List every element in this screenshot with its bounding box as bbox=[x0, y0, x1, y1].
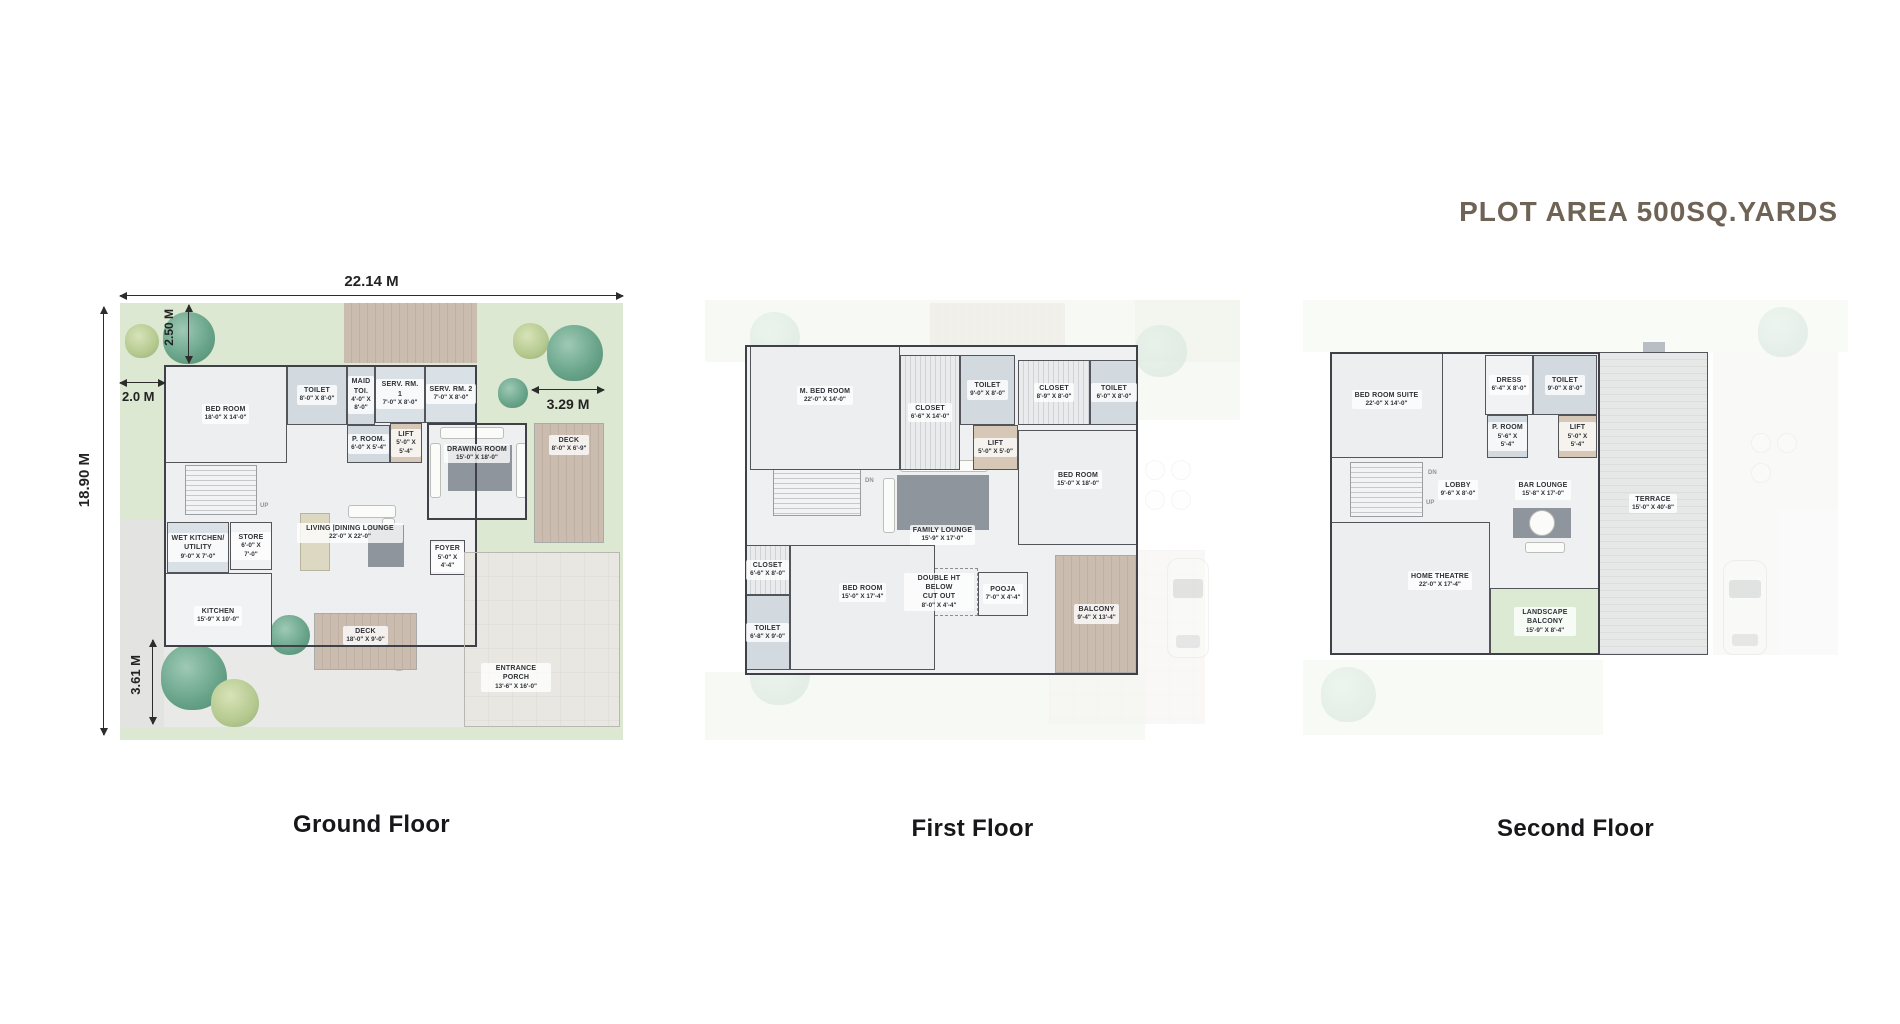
room-home-theatre: HOME THEATRE22'-0" X 17'-4" bbox=[1330, 522, 1490, 655]
room-living-dining-lounge: LIVING |DINING LOUNGE22'-0" X 22'-0" bbox=[280, 473, 420, 593]
room-p-room: P. ROOM5'-6" X 5'-4" bbox=[1487, 415, 1528, 458]
room-kitchen: KITCHEN15'-9" X 10'-0" bbox=[164, 573, 272, 647]
floor-plan-page: PLOT AREA 500SQ.YARDS UP bbox=[0, 0, 1900, 1024]
room-wet-kitchen-utility: WET KITCHEN/ UTILITY9'-0" X 7'-0" bbox=[167, 522, 229, 573]
room-dimensions: 9'-0" X 8'-0" bbox=[1548, 385, 1583, 394]
room-p-room: P. ROOM.6'-0" X 5'-4" bbox=[347, 425, 390, 463]
room-name: POOJA bbox=[986, 585, 1021, 594]
room-serv-rm-1: SERV. RM. 17'-0" X 8'-0" bbox=[375, 365, 425, 423]
room-label: POOJA7'-0" X 4'-4" bbox=[983, 584, 1024, 604]
room-name: DOUBLE HT BELOW bbox=[907, 574, 971, 593]
room-serv-rm-2: SERV. RM. 27'-0" X 8'-0" bbox=[425, 365, 477, 423]
room-toilet: TOILET6'-8" X 9'-0" bbox=[745, 595, 790, 670]
floor-plan-second: DN UP BED ROOM SUITE22'-0" X 14'-0"DRESS… bbox=[1303, 295, 1848, 740]
room-name: P. ROOM. bbox=[351, 435, 386, 444]
room-name: SERV. RM. 2 bbox=[429, 385, 472, 394]
room-label: TOILET6'-0" X 8'-0" bbox=[1091, 383, 1137, 403]
room-dimensions: 22'-0" X 14'-0" bbox=[800, 396, 850, 405]
room-dimensions: 9'-4" X 13'-4" bbox=[1077, 614, 1115, 623]
tree bbox=[547, 325, 603, 381]
room-name: LIFT bbox=[1562, 423, 1593, 432]
room-dimensions: 5'-0" X 5'-0" bbox=[977, 448, 1014, 457]
top-deck bbox=[344, 303, 477, 363]
room-name: P. ROOM bbox=[1491, 423, 1524, 432]
room-label: DRESS6'-4" X 8'-0" bbox=[1489, 375, 1530, 395]
room-dimensions: 6'-6" X 8'-0" bbox=[749, 570, 786, 579]
room-name: TOILET bbox=[300, 386, 335, 395]
room-name: ENTRANCE PORCH bbox=[484, 664, 548, 683]
tree bbox=[270, 615, 310, 655]
room-name: SERV. RM. 1 bbox=[379, 380, 421, 399]
room-name: TERRACE bbox=[1632, 495, 1674, 504]
room-name: CUT OUT bbox=[907, 592, 971, 601]
room-foyer: FOYER5'-0" X 4'-4" bbox=[430, 540, 465, 575]
room-label: DECK8'-0" X 6'-9" bbox=[549, 435, 590, 455]
room-dimensions: 8'-9" X 8'-0" bbox=[1037, 393, 1072, 402]
dim-label-top: 22.14 M bbox=[120, 273, 623, 290]
room-name: TOILET bbox=[1548, 376, 1583, 385]
room-bar-lounge: BAR LOUNGE15'-8" X 17'-0" bbox=[1498, 470, 1588, 530]
room-bed-room: BED ROOM15'-0" X 18'-0" bbox=[1018, 430, 1138, 545]
room-dimensions: 6'-4" X 8'-0" bbox=[1492, 385, 1527, 394]
room-name: CLOSET bbox=[749, 561, 786, 570]
room-lift: LIFT5'-0" X 5'-4" bbox=[390, 423, 422, 463]
room-dimensions: 8'-0" X 6'-9" bbox=[552, 445, 587, 454]
room-label: HOME THEATRE22'-0" X 17'-4" bbox=[1408, 571, 1472, 591]
room-name: TOILET bbox=[749, 624, 786, 633]
dim-arrow-setback-top bbox=[188, 305, 189, 363]
room-label: FAMILY LOUNGE15'-9" X 17'-0" bbox=[910, 525, 975, 545]
dim-arrow-left bbox=[103, 307, 104, 735]
room-toilet: TOILET6'-0" X 8'-0" bbox=[1090, 360, 1138, 425]
room-entrance-porch: ENTRANCE PORCH13'-6" X 16'-0" bbox=[464, 552, 620, 727]
tree bbox=[513, 323, 549, 359]
room-dimensions: 7'-0" X 4'-4" bbox=[986, 594, 1021, 603]
room-dimensions: 15'-8" X 17'-0" bbox=[1518, 490, 1567, 499]
dim-arrow-setback-left bbox=[120, 382, 165, 383]
room-label: P. ROOM5'-6" X 5'-4" bbox=[1488, 422, 1527, 450]
room-name: DRESS bbox=[1492, 376, 1527, 385]
room-label: TOILET6'-8" X 9'-0" bbox=[746, 623, 789, 643]
room-dimensions: 15'-0" X 18'-0" bbox=[1057, 480, 1099, 489]
room-name: LIFT bbox=[394, 430, 418, 439]
room-bed-room: BED ROOM18'-0" X 14'-0" bbox=[164, 365, 287, 463]
room-label: ENTRANCE PORCH13'-6" X 16'-0" bbox=[481, 663, 551, 692]
floor-plan-first: DN M. BED ROOM22'-0" X 14'-0"CLOSET6'-6"… bbox=[705, 300, 1240, 740]
floor-plan-ground: UP bbox=[120, 303, 623, 740]
room-name: BALCONY bbox=[1077, 605, 1115, 614]
room-closet: CLOSET6'-6" X 8'-0" bbox=[745, 545, 790, 595]
room-label: P. ROOM.6'-0" X 5'-4" bbox=[348, 434, 389, 454]
room-label: DOUBLE HT BELOWCUT OUT8'-0" X 4'-4" bbox=[904, 573, 974, 612]
room-label: TERRACE15'-0" X 40'-8" bbox=[1629, 494, 1677, 514]
dim-label-bottom: 3.61 M bbox=[128, 655, 143, 695]
room-dimensions: 18'-0" X 9'-0" bbox=[346, 636, 384, 645]
stairs-direction-label: UP bbox=[1426, 500, 1434, 506]
room-label: TOILET9'-0" X 8'-0" bbox=[1545, 375, 1586, 395]
room-name: BED ROOM bbox=[205, 405, 247, 414]
room-label: KITCHEN15'-9" X 10'-0" bbox=[194, 606, 242, 626]
room-dimensions: 6'-0" X 5'-4" bbox=[351, 444, 386, 453]
tree bbox=[211, 679, 259, 727]
room-label: SERV. RM. 27'-0" X 8'-0" bbox=[426, 384, 475, 404]
room-terrace: TERRACE15'-0" X 40'-8" bbox=[1598, 352, 1708, 655]
room-label: BED ROOM15'-0" X 18'-0" bbox=[1054, 470, 1102, 490]
room-name: STORE bbox=[234, 533, 268, 542]
room-label: SERV. RM. 17'-0" X 8'-0" bbox=[376, 379, 424, 408]
room-name: LANDSCAPE BALCONY bbox=[1517, 608, 1573, 627]
floor-title-second: Second Floor bbox=[1303, 815, 1848, 843]
second-plan: DN UP BED ROOM SUITE22'-0" X 14'-0"DRESS… bbox=[1303, 295, 1848, 740]
room-dress: DRESS6'-4" X 8'-0" bbox=[1485, 355, 1533, 415]
room-label: LIFT5'-0" X 5'-4" bbox=[391, 429, 421, 457]
room-label: TOILET9'-0" X 8'-0" bbox=[967, 380, 1008, 400]
room-label: CLOSET8'-9" X 8'-0" bbox=[1034, 383, 1075, 403]
room-dimensions: 5'-6" X 5'-4" bbox=[1491, 433, 1524, 450]
room-label: CLOSET6'-6" X 14'-0" bbox=[908, 403, 952, 423]
room-name: TOILET bbox=[1094, 384, 1134, 393]
room-name: LIVING |DINING LOUNGE bbox=[300, 524, 400, 533]
staircase bbox=[185, 465, 257, 515]
room-dimensions: 9'-0" X 7'-0" bbox=[171, 553, 225, 562]
room-name: BED ROOM SUITE bbox=[1355, 391, 1419, 400]
room-pooja: POOJA7'-0" X 4'-4" bbox=[978, 572, 1028, 616]
stairs-direction-label: DN bbox=[1428, 470, 1437, 476]
room-name: DECK bbox=[552, 436, 587, 445]
room-label: BED ROOM SUITE22'-0" X 14'-0" bbox=[1352, 390, 1422, 410]
room-dimensions: 18'-0" X 14'-0" bbox=[205, 414, 247, 423]
room-dimensions: 8'-0" X 8'-0" bbox=[300, 395, 335, 404]
room-dimensions: 5'-0" X 5'-4" bbox=[1562, 433, 1593, 450]
room-label: BAR LOUNGE15'-8" X 17'-0" bbox=[1515, 480, 1570, 500]
floor-title-ground: Ground Floor bbox=[120, 811, 623, 839]
room-deck: DECK18'-0" X 9'-0" bbox=[314, 613, 417, 670]
page-title: PLOT AREA 500SQ.YARDS bbox=[1459, 196, 1838, 228]
room-label: M. BED ROOM22'-0" X 14'-0" bbox=[797, 386, 853, 406]
ground-plan: UP bbox=[120, 303, 623, 740]
room-name: LIFT bbox=[977, 439, 1014, 448]
room-label: DECK18'-0" X 9'-0" bbox=[343, 626, 387, 646]
room-dimensions: 9'-0" X 8'-0" bbox=[970, 390, 1005, 399]
stairs-direction-label: DN bbox=[865, 478, 874, 484]
room-double-ht-below: DOUBLE HT BELOWCUT OUT8'-0" X 4'-4" bbox=[900, 568, 978, 616]
room-dimensions: 5'-0" X 5'-4" bbox=[394, 439, 418, 456]
room-label: BALCONY9'-4" X 13'-4" bbox=[1074, 604, 1118, 624]
room-store: STORE6'-0" X 7'-0" bbox=[230, 522, 272, 570]
room-name: CLOSET bbox=[1037, 384, 1072, 393]
room-dimensions: 6'-6" X 14'-0" bbox=[911, 413, 949, 422]
room-name: BED ROOM bbox=[1057, 471, 1099, 480]
room-label: LIFT5'-0" X 5'-4" bbox=[1559, 422, 1596, 450]
room-lobby: LOBBY9'-6" X 8'-0" bbox=[1423, 460, 1493, 520]
room-balcony: BALCONY9'-4" X 13'-4" bbox=[1055, 555, 1138, 673]
room-label: FOYER5'-0" X 4'-4" bbox=[431, 543, 464, 571]
room-label: LANDSCAPE BALCONY15'-9" X 8'-4" bbox=[1514, 607, 1576, 636]
room-toilet: TOILET8'-0" X 8'-0" bbox=[287, 365, 347, 425]
room-label: LIVING |DINING LOUNGE22'-0" X 22'-0" bbox=[297, 523, 403, 543]
room-label: BED ROOM18'-0" X 14'-0" bbox=[202, 404, 250, 424]
room-name: FAMILY LOUNGE bbox=[913, 526, 972, 535]
room-dimensions: 15'-9" X 10'-0" bbox=[197, 616, 239, 625]
driveway-strip bbox=[120, 520, 164, 727]
room-name: CLOSET bbox=[911, 404, 949, 413]
room-toilet: TOILET9'-0" X 8'-0" bbox=[960, 355, 1015, 425]
room-dimensions: 6'-0" X 8'-0" bbox=[1094, 393, 1134, 402]
dim-arrow-right bbox=[532, 389, 604, 390]
room-label: DRAWING ROOM15'-0" X 18'-0" bbox=[444, 444, 510, 464]
staircase bbox=[1350, 462, 1423, 517]
room-label: BED ROOM15'-0" X 17'-4" bbox=[839, 583, 887, 603]
room-name: BAR LOUNGE bbox=[1518, 481, 1567, 490]
room-name: MAID TOI. bbox=[351, 377, 371, 396]
room-dimensions: 8'-0" X 4'-4" bbox=[907, 602, 971, 611]
room-name: KITCHEN bbox=[197, 607, 239, 616]
room-name: DECK bbox=[346, 627, 384, 636]
room-toilet: TOILET9'-0" X 8'-0" bbox=[1533, 355, 1597, 415]
room-dimensions: 5'-0" X 4'-4" bbox=[434, 554, 461, 571]
dim-label-setback-left: 2.0 M bbox=[122, 389, 155, 404]
room-lift: LIFT5'-0" X 5'-4" bbox=[1558, 415, 1597, 458]
room-maid-toi: MAID TOI.4'-0" X 8'-0" bbox=[347, 365, 375, 425]
room-dimensions: 7'-0" X 8'-0" bbox=[379, 399, 421, 408]
dim-arrow-bottom bbox=[152, 640, 153, 724]
room-name: WET KITCHEN/ UTILITY bbox=[171, 534, 225, 553]
room-closet: CLOSET8'-9" X 8'-0" bbox=[1018, 360, 1090, 425]
first-plan: DN M. BED ROOM22'-0" X 14'-0"CLOSET6'-6"… bbox=[705, 300, 1240, 740]
dim-arrow-top bbox=[120, 295, 623, 296]
room-dimensions: 13'-6" X 16'-0" bbox=[484, 683, 548, 692]
room-dimensions: 4'-0" X 8'-0" bbox=[351, 396, 371, 413]
room-dimensions: 9'-6" X 8'-0" bbox=[1441, 490, 1476, 499]
room-name: TOILET bbox=[970, 381, 1005, 390]
room-dimensions: 15'-9" X 17'-0" bbox=[913, 535, 972, 544]
room-dimensions: 15'-0" X 18'-0" bbox=[447, 454, 507, 463]
stairs-direction-label: UP bbox=[260, 503, 268, 509]
room-drawing-room: DRAWING ROOM15'-0" X 18'-0" bbox=[427, 423, 527, 520]
room-m-bed-room: M. BED ROOM22'-0" X 14'-0" bbox=[750, 345, 900, 470]
room-label: STORE6'-0" X 7'-0" bbox=[231, 532, 271, 560]
terrace-parapet bbox=[1643, 342, 1665, 352]
room-bed-room-suite: BED ROOM SUITE22'-0" X 14'-0" bbox=[1330, 353, 1443, 458]
room-name: DRAWING ROOM bbox=[447, 445, 507, 454]
room-dimensions: 6'-0" X 7'-0" bbox=[234, 542, 268, 559]
room-name: HOME THEATRE bbox=[1411, 572, 1469, 581]
room-label: LIFT5'-0" X 5'-0" bbox=[974, 438, 1017, 458]
room-name: M. BED ROOM bbox=[800, 387, 850, 396]
bar-credenza bbox=[1525, 542, 1565, 553]
dim-label-setback-top: 2.50 M bbox=[162, 309, 176, 346]
room-name: BED ROOM bbox=[842, 584, 884, 593]
room-label: TOILET8'-0" X 8'-0" bbox=[297, 385, 338, 405]
room-name: FOYER bbox=[434, 544, 461, 553]
room-dimensions: 7'-0" X 8'-0" bbox=[429, 394, 472, 403]
room-label: LOBBY9'-6" X 8'-0" bbox=[1438, 480, 1479, 500]
room-label: WET KITCHEN/ UTILITY9'-0" X 7'-0" bbox=[168, 533, 228, 562]
room-dimensions: 22'-0" X 14'-0" bbox=[1355, 400, 1419, 409]
floor-title-first: First Floor bbox=[705, 815, 1240, 843]
room-landscape-balcony: LANDSCAPE BALCONY15'-9" X 8'-4" bbox=[1490, 588, 1600, 655]
staircase bbox=[773, 468, 861, 516]
room-closet: CLOSET6'-6" X 14'-0" bbox=[900, 355, 960, 470]
room-lift: LIFT5'-0" X 5'-0" bbox=[973, 425, 1018, 470]
room-dimensions: 15'-0" X 40'-8" bbox=[1632, 504, 1674, 513]
room-label: CLOSET6'-6" X 8'-0" bbox=[746, 560, 789, 580]
room-name: LOBBY bbox=[1441, 481, 1476, 490]
room-dimensions: 15'-9" X 8'-4" bbox=[1517, 627, 1573, 636]
tree bbox=[498, 378, 528, 408]
dim-label-left: 18.90 M bbox=[76, 453, 93, 507]
room-dimensions: 22'-0" X 17'-4" bbox=[1411, 581, 1469, 590]
dim-label-right: 3.29 M bbox=[525, 396, 611, 412]
room-dimensions: 15'-0" X 17'-4" bbox=[842, 593, 884, 602]
room-dimensions: 6'-8" X 9'-0" bbox=[749, 633, 786, 642]
ghost-car bbox=[1167, 558, 1209, 658]
room-label: MAID TOI.4'-0" X 8'-0" bbox=[348, 376, 374, 414]
room-dimensions: 22'-0" X 22'-0" bbox=[300, 533, 400, 542]
tree bbox=[125, 324, 159, 358]
ghost-car bbox=[1723, 560, 1767, 655]
room-deck: DECK8'-0" X 6'-9" bbox=[534, 423, 604, 543]
